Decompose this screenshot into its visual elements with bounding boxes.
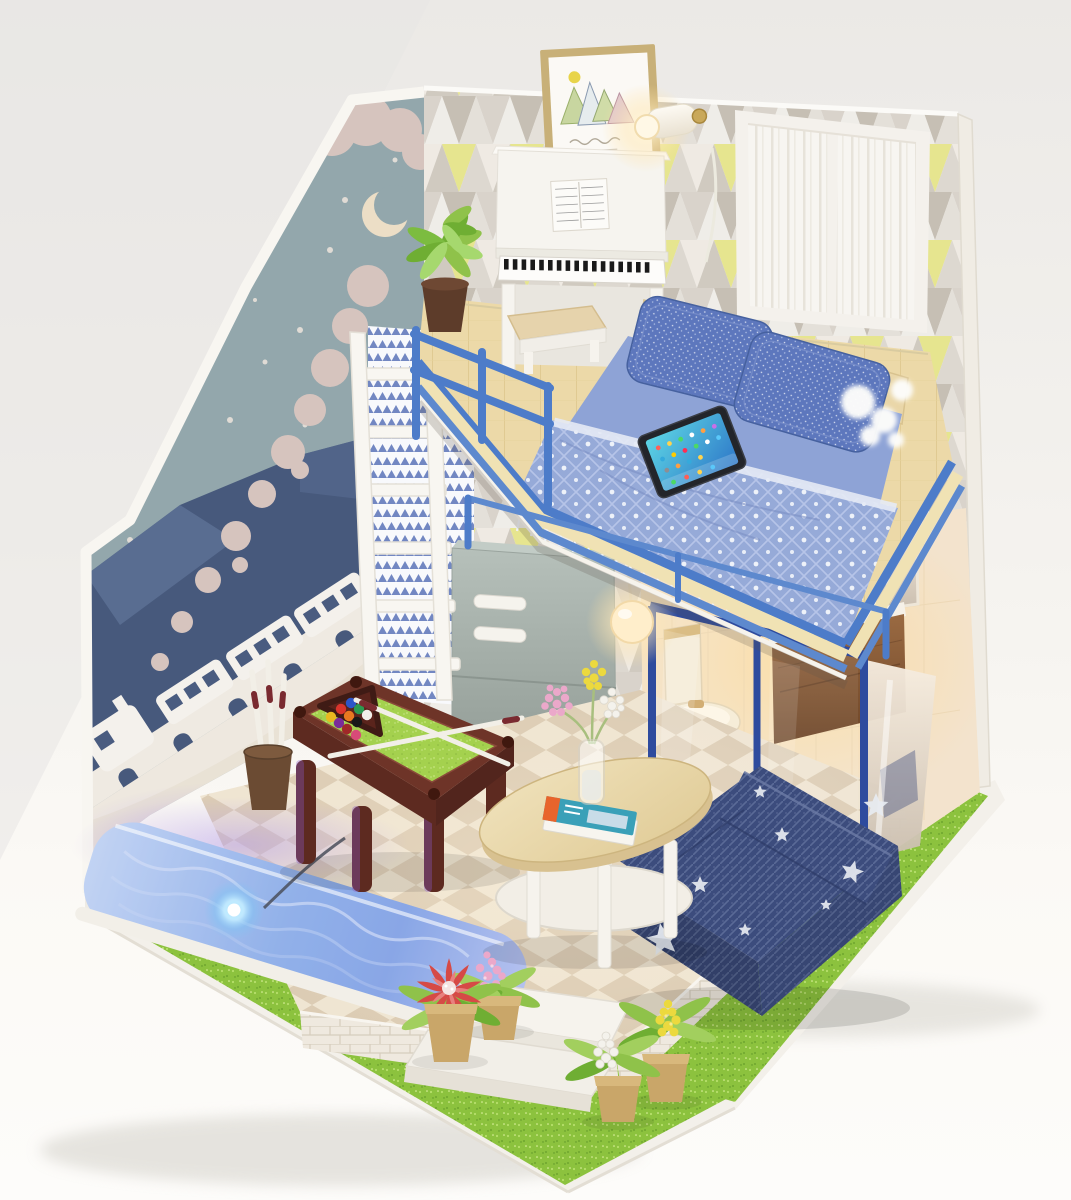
- dollhouse-photo: [0, 0, 1071, 1200]
- sheet-music: [551, 179, 610, 232]
- table-shelf: [496, 865, 692, 931]
- lamp-bulb: [635, 115, 659, 139]
- window: [735, 110, 930, 333]
